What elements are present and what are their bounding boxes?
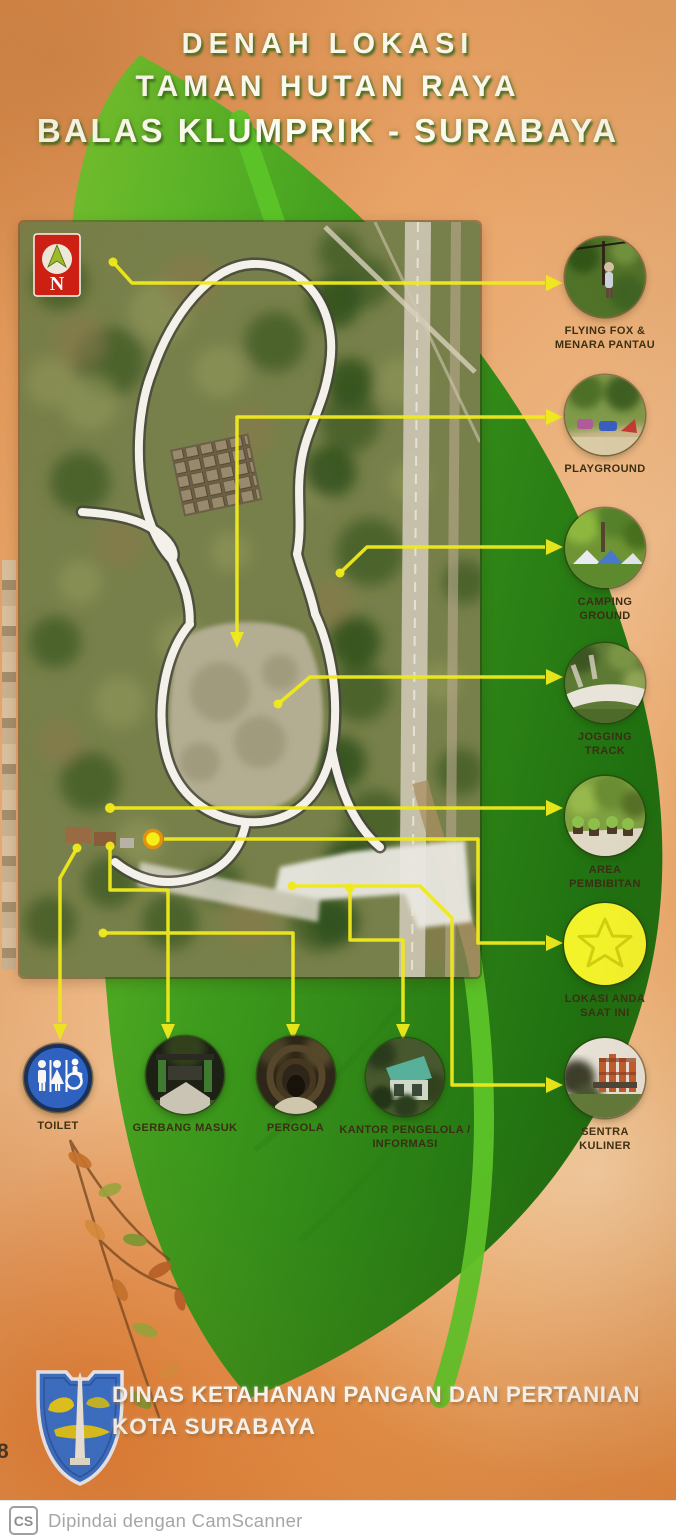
callout-pergola: PERGOLA <box>248 1036 343 1135</box>
camscanner-bar: CS Dipindai dengan CamScanner <box>0 1500 676 1539</box>
pergola-photo <box>257 1036 335 1114</box>
callout-label: JOGGINGTRACK <box>530 730 676 758</box>
north-label: N <box>50 273 65 295</box>
footer-line-1: DINAS KETAHANAN PANGAN DAN PERTANIAN <box>112 1382 672 1408</box>
map-lake <box>169 622 323 812</box>
callout-jogging-track: JOGGINGTRACK <box>530 643 676 758</box>
toilet-sign-icon <box>24 1044 92 1112</box>
callout-toilet: TOILET <box>8 1044 108 1133</box>
flying-fox-photo <box>565 237 645 317</box>
scanned-poster-page: DENAH LOKASI TAMAN HUTAN RAYA BALAS KLUM… <box>0 0 676 1539</box>
poster: DENAH LOKASI TAMAN HUTAN RAYA BALAS KLUM… <box>0 0 676 1500</box>
sentra-kuliner-photo <box>565 1038 645 1118</box>
title-line-3: BALAS KLUMPRIK - SURABAYA <box>0 112 656 150</box>
gerbang-masuk-photo <box>146 1036 224 1114</box>
callout-label: SENTRAKULINER <box>530 1125 676 1153</box>
kantor-pengelola-photo <box>366 1038 444 1116</box>
callout-sentra-kuliner: SENTRAKULINER <box>530 1038 676 1153</box>
current-location-badge <box>564 903 646 985</box>
footer-agency: DINAS KETAHANAN PANGAN DAN PERTANIAN KOT… <box>112 1382 672 1440</box>
poster-title: DENAH LOKASI TAMAN HUTAN RAYA BALAS KLUM… <box>0 28 656 150</box>
callout-label: TOILET <box>8 1119 108 1133</box>
callout-label: PLAYGROUND <box>530 462 676 476</box>
callout-camping-ground: CAMPINGGROUND <box>530 508 676 623</box>
callout-gerbang-masuk: GERBANG MASUK <box>130 1036 240 1135</box>
callout-current-location: LOKASI ANDASAAT INI <box>530 903 676 1020</box>
current-location-star-icon <box>579 919 631 966</box>
callout-label: PERGOLA <box>248 1121 343 1135</box>
callout-playground: PLAYGROUND <box>530 375 676 476</box>
callout-label: AREAPEMBIBITAN <box>530 863 676 891</box>
title-line-1: DENAH LOKASI <box>0 28 656 61</box>
scan-edge-houses <box>2 560 16 970</box>
callout-flying-fox: FLYING FOX &MENARA PANTAU <box>530 237 676 352</box>
callout-kantor-pengelola: KANTOR PENGELOLA /INFORMASI <box>336 1038 474 1151</box>
north-indicator: N <box>34 234 80 296</box>
callout-area-pembibitan: AREAPEMBIBITAN <box>530 776 676 891</box>
callout-label: LOKASI ANDASAAT INI <box>530 992 676 1020</box>
camscanner-watermark-text: Dipindai dengan CamScanner <box>48 1510 303 1532</box>
camping-ground-photo <box>565 508 645 588</box>
jogging-track-photo <box>565 643 645 723</box>
footer-line-2: KOTA SURABAYA <box>112 1414 672 1440</box>
aerial-map: N <box>20 222 480 977</box>
area-pembibitan-photo <box>565 776 645 856</box>
callout-label: KANTOR PENGELOLA /INFORMASI <box>336 1123 474 1151</box>
scan-artifact: 8 <box>0 1440 9 1464</box>
callout-label: FLYING FOX &MENARA PANTAU <box>530 324 676 352</box>
playground-photo <box>565 375 645 455</box>
callout-label: GERBANG MASUK <box>130 1121 240 1135</box>
callout-label: CAMPINGGROUND <box>530 595 676 623</box>
camscanner-logo-icon: CS <box>9 1506 38 1535</box>
title-line-2: TAMAN HUTAN RAYA <box>0 70 656 104</box>
